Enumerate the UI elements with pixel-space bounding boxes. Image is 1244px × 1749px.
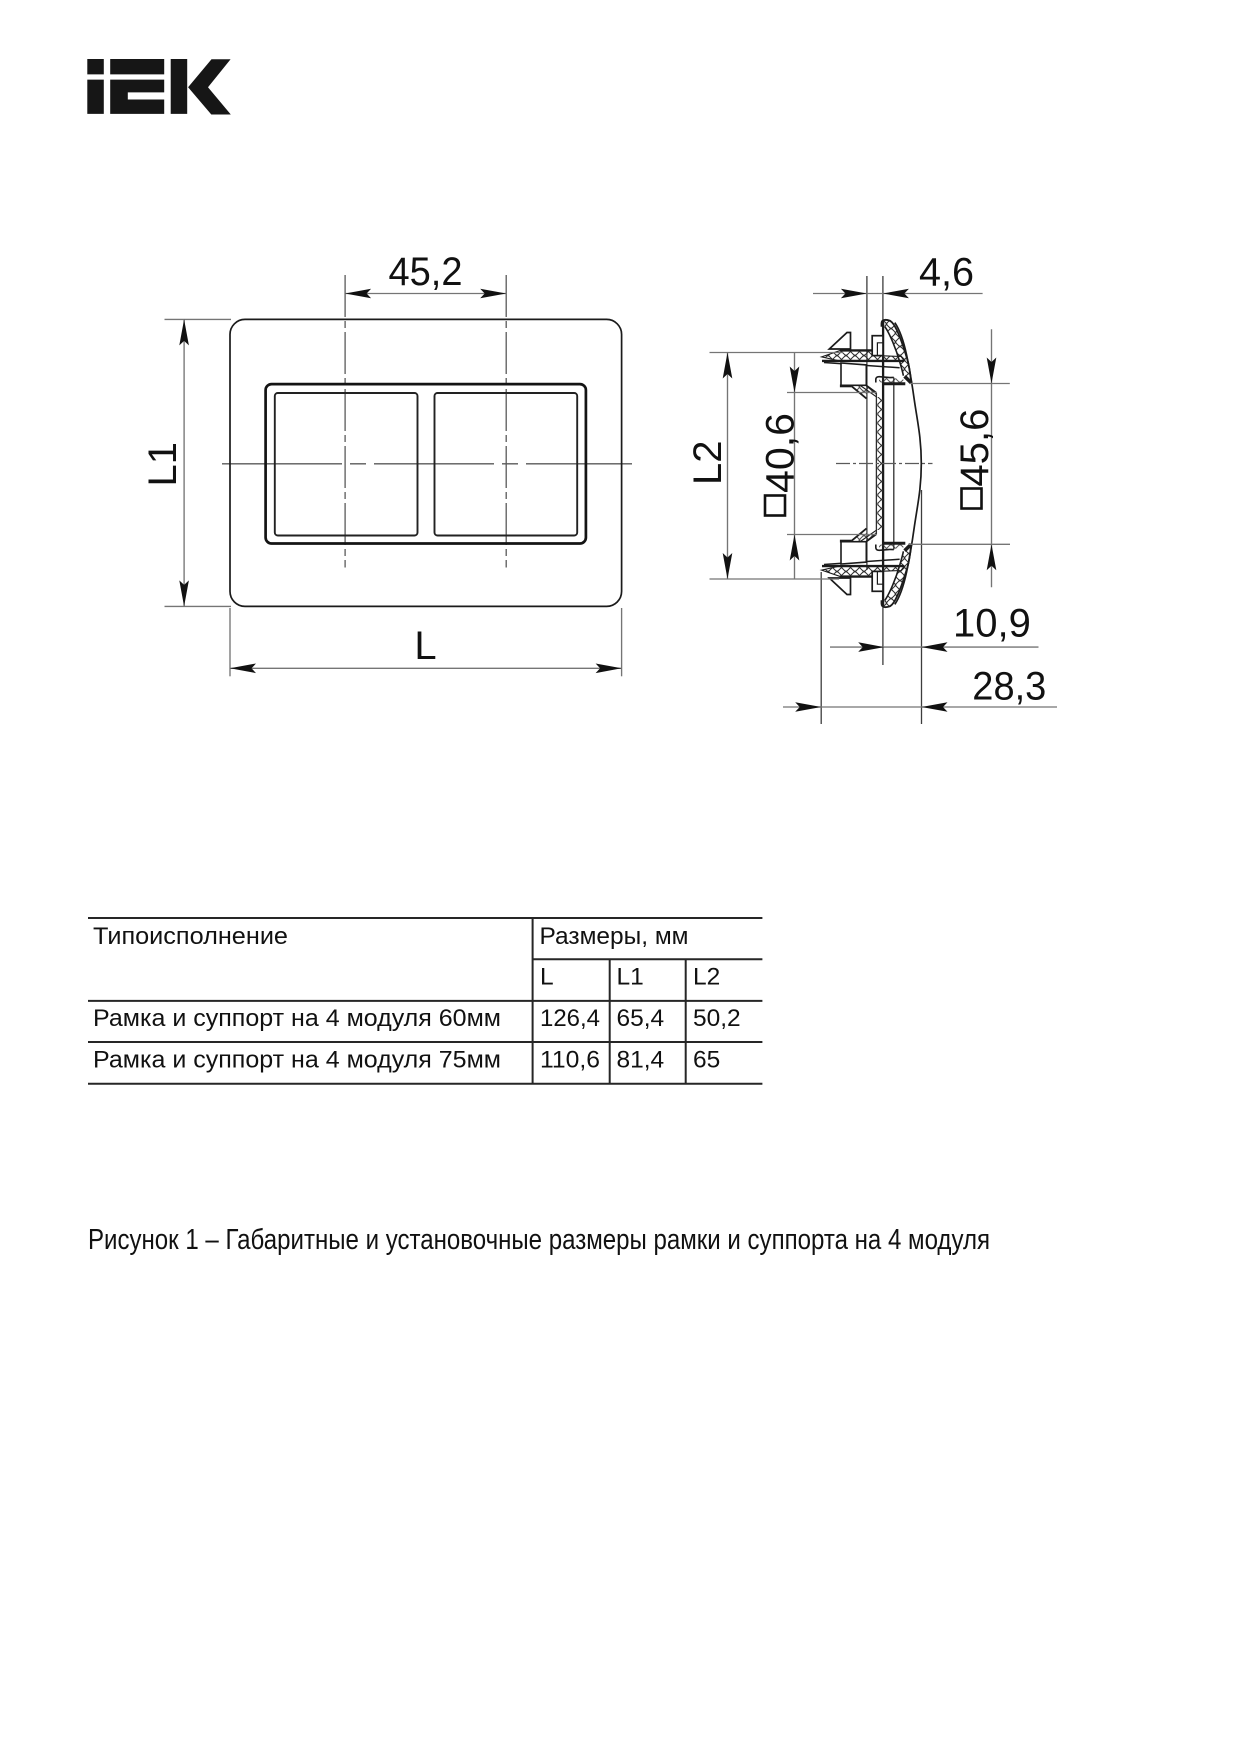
svg-text:110,6: 110,6 [540, 1046, 600, 1073]
svg-text:Типоисполнение: Типоисполнение [93, 923, 288, 950]
svg-text:50,2: 50,2 [693, 1005, 741, 1032]
svg-text:45,6: 45,6 [953, 409, 997, 487]
svg-text:Рамка и суппорт на 4 модуля 60: Рамка и суппорт на 4 модуля 60мм [93, 1005, 501, 1032]
svg-text:L2: L2 [693, 964, 720, 991]
svg-text:L2: L2 [686, 441, 730, 486]
svg-text:81,4: 81,4 [617, 1046, 665, 1073]
svg-text:L: L [540, 964, 554, 991]
svg-text:L: L [414, 624, 436, 668]
svg-text:126,4: 126,4 [540, 1005, 600, 1032]
svg-text:4,6: 4,6 [919, 251, 974, 295]
svg-text:Размеры, мм: Размеры, мм [540, 923, 689, 950]
svg-text:Рисунок 1 – Габаритные и устан: Рисунок 1 – Габаритные и установочные ра… [88, 1224, 990, 1256]
svg-text:40,6: 40,6 [759, 413, 803, 493]
svg-text:45,2: 45,2 [389, 250, 463, 294]
svg-text:L1: L1 [617, 964, 644, 991]
svg-text:65,4: 65,4 [617, 1005, 665, 1032]
svg-text:65: 65 [693, 1046, 720, 1073]
svg-text:L1: L1 [141, 442, 185, 487]
svg-text:10,9: 10,9 [953, 602, 1031, 646]
svg-text:Рамка и суппорт на 4 модуля 75: Рамка и суппорт на 4 модуля 75мм [93, 1046, 501, 1073]
svg-text:28,3: 28,3 [972, 665, 1046, 709]
